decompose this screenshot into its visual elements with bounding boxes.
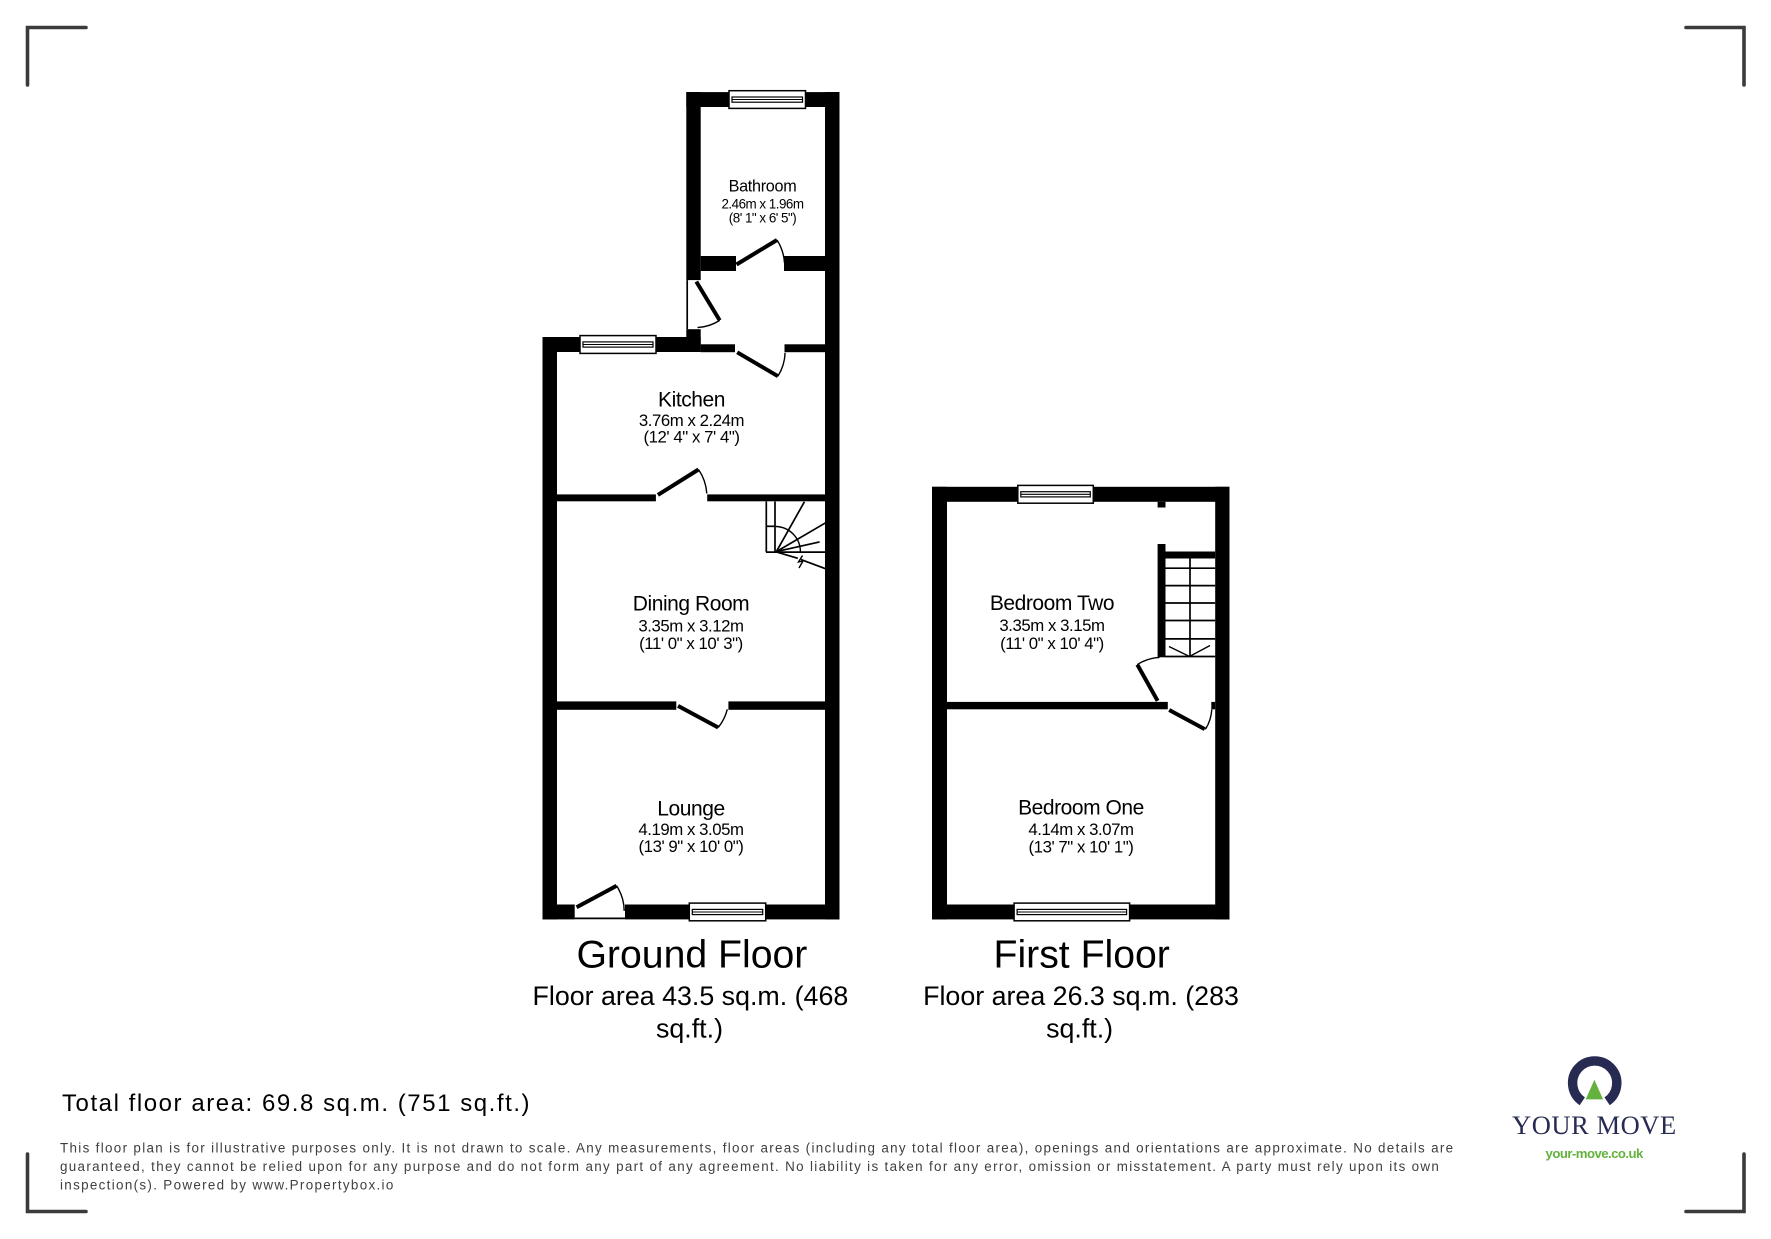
svg-text:Floor area 26.3 sq.m. (283: Floor area 26.3 sq.m. (283 (923, 981, 1239, 1011)
svg-text:(13' 9" x 10' 0"): (13' 9" x 10' 0") (639, 837, 744, 856)
svg-text:sq.ft.): sq.ft.) (1046, 1014, 1113, 1044)
svg-text:First Floor: First Floor (994, 933, 1170, 976)
svg-text:(13' 7" x 10' 1"): (13' 7" x 10' 1") (1029, 838, 1134, 857)
svg-text:This floor plan is for illustr: This floor plan is for illustrative purp… (60, 1141, 1454, 1156)
svg-text:Bedroom One: Bedroom One (1018, 796, 1144, 819)
svg-text:Floor area 43.5 sq.m. (468: Floor area 43.5 sq.m. (468 (533, 981, 849, 1011)
svg-text:(11' 0" x 10' 4"): (11' 0" x 10' 4") (1000, 634, 1104, 653)
svg-text:inspection(s). Powered by www.: inspection(s). Powered by www.Propertybo… (60, 1177, 395, 1192)
svg-text:2.46m x 1.96m: 2.46m x 1.96m (721, 197, 803, 212)
svg-text:3.35m x 3.15m: 3.35m x 3.15m (999, 616, 1104, 635)
svg-text:Bedroom Two: Bedroom Two (990, 592, 1114, 615)
svg-text:Lounge: Lounge (657, 798, 724, 821)
svg-text:YOUR MOVE: YOUR MOVE (1512, 1110, 1677, 1140)
svg-text:sq.ft.): sq.ft.) (656, 1014, 723, 1044)
svg-text:3.35m x 3.12m: 3.35m x 3.12m (638, 617, 743, 636)
svg-text:guaranteed, they cannot be rel: guaranteed, they cannot be relied upon f… (60, 1159, 1440, 1174)
svg-text:your-move.co.uk: your-move.co.uk (1546, 1146, 1644, 1161)
svg-text:Total floor area: 69.8 sq.m. (: Total floor area: 69.8 sq.m. (751 sq.ft.… (62, 1090, 531, 1117)
svg-text:Bathroom: Bathroom (729, 178, 797, 196)
svg-text:Dining Room: Dining Room (633, 593, 749, 616)
svg-text:(11' 0" x 10' 3"): (11' 0" x 10' 3") (639, 634, 743, 653)
svg-text:4.14m x 3.07m: 4.14m x 3.07m (1028, 820, 1133, 839)
svg-text:(8' 1" x 6' 5"): (8' 1" x 6' 5") (729, 211, 796, 226)
svg-text:Ground Floor: Ground Floor (576, 933, 807, 976)
svg-text:(12' 4" x 7' 4"): (12' 4" x 7' 4") (643, 428, 739, 447)
svg-text:Kitchen: Kitchen (658, 389, 725, 412)
